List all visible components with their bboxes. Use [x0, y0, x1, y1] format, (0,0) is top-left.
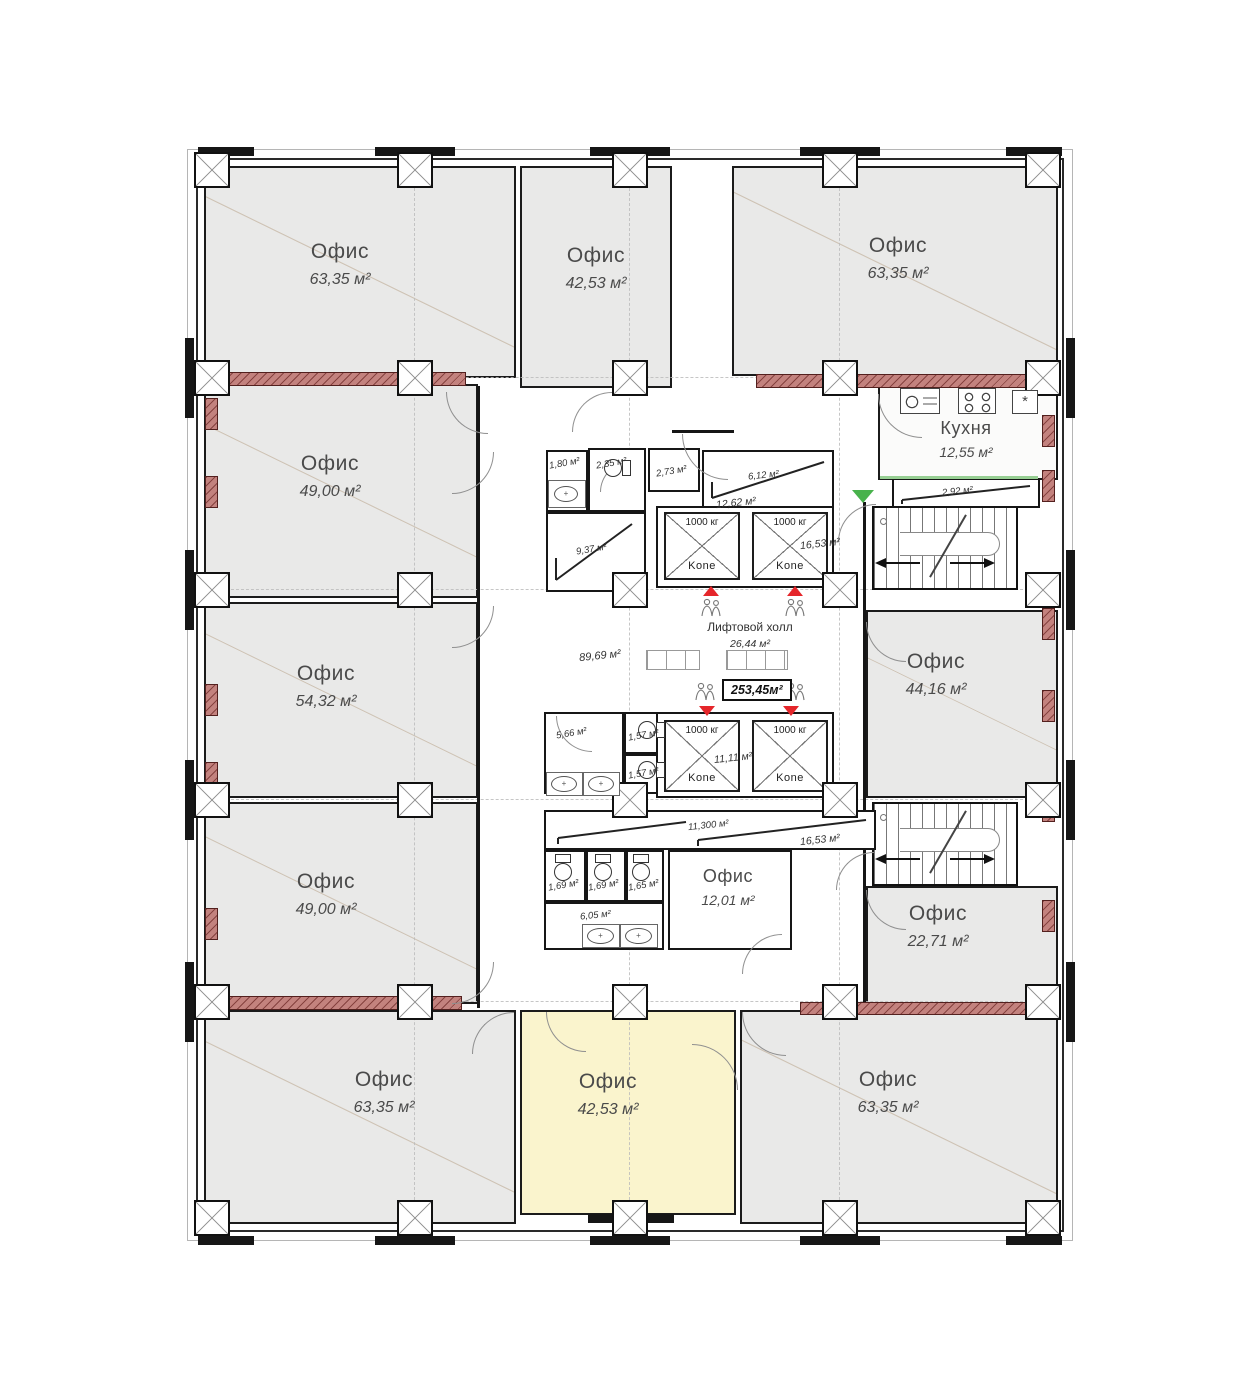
bench: [726, 650, 788, 670]
stair-direction-arrow: [886, 562, 920, 564]
structural-column: [397, 152, 433, 188]
room-area: 44,16 м²: [856, 681, 1016, 699]
facade-stub: [185, 760, 194, 840]
structural-column: [194, 572, 230, 608]
room-area: 12,55 м²: [886, 444, 1046, 460]
facade-stub: [1066, 338, 1075, 418]
room-name: Офис: [246, 870, 406, 894]
structural-column: [397, 782, 433, 818]
structural-column: [822, 1200, 858, 1236]
room-name: Офис: [250, 452, 410, 476]
elevator-brand-label: Kone: [754, 772, 826, 784]
room-name: Офис: [648, 866, 808, 887]
stair-post: [880, 814, 887, 821]
room-label-highlighted: Офис 42,53 м²: [528, 1070, 688, 1119]
room-label: Офис 63,35 м²: [260, 240, 420, 289]
structural-column: [822, 984, 858, 1020]
sink-icon: [625, 928, 652, 944]
facade-stub: [185, 338, 194, 418]
room-name: Офис: [304, 1068, 464, 1092]
room-name: Офис: [260, 240, 420, 264]
room-label: Офис 42,53 м²: [516, 244, 676, 293]
sink-icon: [587, 928, 614, 944]
kitchen-counter-line: [880, 476, 1038, 479]
room-label: Офис 49,00 м²: [250, 452, 410, 501]
structural-column: [822, 152, 858, 188]
elevator-capacity-label: 1000 кг: [666, 725, 738, 736]
elevator-down-triangle-icon: [783, 706, 799, 716]
room-name: Офис: [808, 1068, 968, 1092]
brick-pilaster: [1042, 690, 1055, 722]
facade-stub: [1066, 760, 1075, 840]
sink-icon: [554, 486, 578, 502]
room-label: Офис 49,00 м²: [246, 870, 406, 919]
room-area: 63,35 м²: [808, 1099, 968, 1117]
room-name: Офис: [516, 244, 676, 268]
kitchen-sink-icon: [900, 388, 940, 414]
facade-stub: [1066, 962, 1075, 1042]
room-label: Офис 12,01 м²: [648, 866, 808, 908]
brick-pilaster: [205, 908, 218, 940]
facade-stub: [375, 1236, 455, 1245]
structural-column: [612, 984, 648, 1020]
room-label: Офис 44,16 м²: [856, 650, 1016, 699]
elevator-down-triangle-icon: [699, 706, 715, 716]
elevator-up-triangle-icon: [703, 586, 719, 596]
sink-icon: [588, 776, 614, 792]
toilet-icon: [553, 854, 571, 881]
elevator-capacity-label: 1000 кг: [754, 517, 826, 528]
facade-stub: [1066, 550, 1075, 630]
stair-post: [880, 518, 887, 525]
structural-column: [822, 360, 858, 396]
room-label: Офис 54,32 м²: [246, 662, 406, 711]
room-area: 63,35 м²: [304, 1099, 464, 1117]
facade-stub: [590, 1236, 670, 1245]
facade-stub: [198, 1236, 254, 1245]
elevator-up-triangle-icon: [787, 586, 803, 596]
room-label: Офис 63,35 м²: [818, 234, 978, 283]
room-name: Офис: [818, 234, 978, 258]
room-name: Офис: [858, 902, 1018, 926]
elevator-brand-label: Kone: [754, 560, 826, 572]
room-name: Кухня: [886, 418, 1046, 439]
entry-arrow-icon: [852, 490, 874, 503]
room-name: Офис: [528, 1070, 688, 1094]
room-area: 42,53 м²: [528, 1101, 688, 1119]
room-area: 12,01 м²: [648, 892, 808, 908]
structural-column: [822, 572, 858, 608]
room-area: 49,00 м²: [246, 901, 406, 919]
kitchen-label: Кухня 12,55 м²: [886, 418, 1046, 460]
floor-plan-canvas: 1000 кг Kone 1000 кг Kone 1000 кг Kone 1…: [0, 0, 1260, 1392]
elevator-brand-label: Kone: [666, 560, 738, 572]
elevator-capacity-label: 1000 кг: [754, 725, 826, 736]
structural-column: [1025, 572, 1061, 608]
people-icon: [692, 682, 718, 702]
structural-column: [612, 1200, 648, 1236]
room-label: Офис 22,71 м²: [858, 902, 1018, 951]
elevator-brand-label: Kone: [666, 772, 738, 784]
grid-centerline: [629, 168, 630, 1220]
grid-centerline: [839, 168, 840, 1220]
brick-pilaster: [205, 476, 218, 508]
structural-column: [1025, 782, 1061, 818]
structural-column: [1025, 1200, 1061, 1236]
room-area: 63,35 м²: [260, 271, 420, 289]
room-area: 54,32 м²: [246, 693, 406, 711]
room-label: Офис 63,35 м²: [808, 1068, 968, 1117]
structural-column: [1025, 984, 1061, 1020]
room-area: 63,35 м²: [818, 265, 978, 283]
room-area: 42,53 м²: [516, 275, 676, 293]
room-name: Офис: [246, 662, 406, 686]
facade-stub: [1006, 1236, 1062, 1245]
facade-stub: [800, 1236, 880, 1245]
brick-pilaster: [1042, 900, 1055, 932]
structural-column: [612, 152, 648, 188]
brick-pilaster: [205, 684, 218, 716]
elevator-capacity-label: 1000 кг: [666, 517, 738, 528]
structural-column: [822, 782, 858, 818]
lift-hall-name: Лифтовой холл: [660, 620, 840, 634]
people-icon: [782, 598, 808, 618]
grid-centerline: [414, 168, 415, 1220]
lift-hall-area: 26,44 м²: [660, 638, 840, 650]
structural-column: [194, 152, 230, 188]
brick-pilaster: [205, 398, 218, 430]
toilet-icon: [631, 854, 649, 881]
fridge-icon: *: [1012, 390, 1038, 414]
office-bottom-right[interactable]: [740, 1010, 1058, 1224]
sink-icon: [551, 776, 577, 792]
stair-direction-arrow: [950, 858, 984, 860]
elevator-cabin: 1000 кг Kone: [664, 512, 740, 580]
toilet-icon: [593, 854, 611, 881]
structural-column: [612, 360, 648, 396]
corridor-wall: [672, 430, 734, 433]
structural-column: [194, 1200, 230, 1236]
elevator-cabin: 1000 кг Kone: [752, 720, 828, 792]
floor-total-badge: 253,45м²: [722, 679, 792, 701]
room-label: Офис 63,35 м²: [304, 1068, 464, 1117]
structural-column: [1025, 152, 1061, 188]
structural-column: [612, 572, 648, 608]
structural-column: [397, 360, 433, 396]
structural-column: [194, 984, 230, 1020]
brick-pilaster: [1042, 470, 1055, 502]
facade-stub: [185, 550, 194, 630]
brick-wall-segment: [756, 374, 1058, 388]
room-name: Офис: [856, 650, 1016, 674]
structural-column: [194, 360, 230, 396]
office-bottom-left[interactable]: [204, 1010, 516, 1224]
room-area: 22,71 м²: [858, 933, 1018, 951]
structural-column: [397, 572, 433, 608]
structural-column: [194, 782, 230, 818]
bench: [646, 650, 700, 670]
people-icon: [698, 598, 724, 618]
facade-stub: [185, 962, 194, 1042]
stair-direction-arrow: [950, 562, 984, 564]
structural-column: [397, 984, 433, 1020]
brick-pilaster: [1042, 608, 1055, 640]
stove-icon: [958, 388, 996, 414]
stair-direction-arrow: [886, 858, 920, 860]
room-area: 49,00 м²: [250, 483, 410, 501]
structural-column: [397, 1200, 433, 1236]
